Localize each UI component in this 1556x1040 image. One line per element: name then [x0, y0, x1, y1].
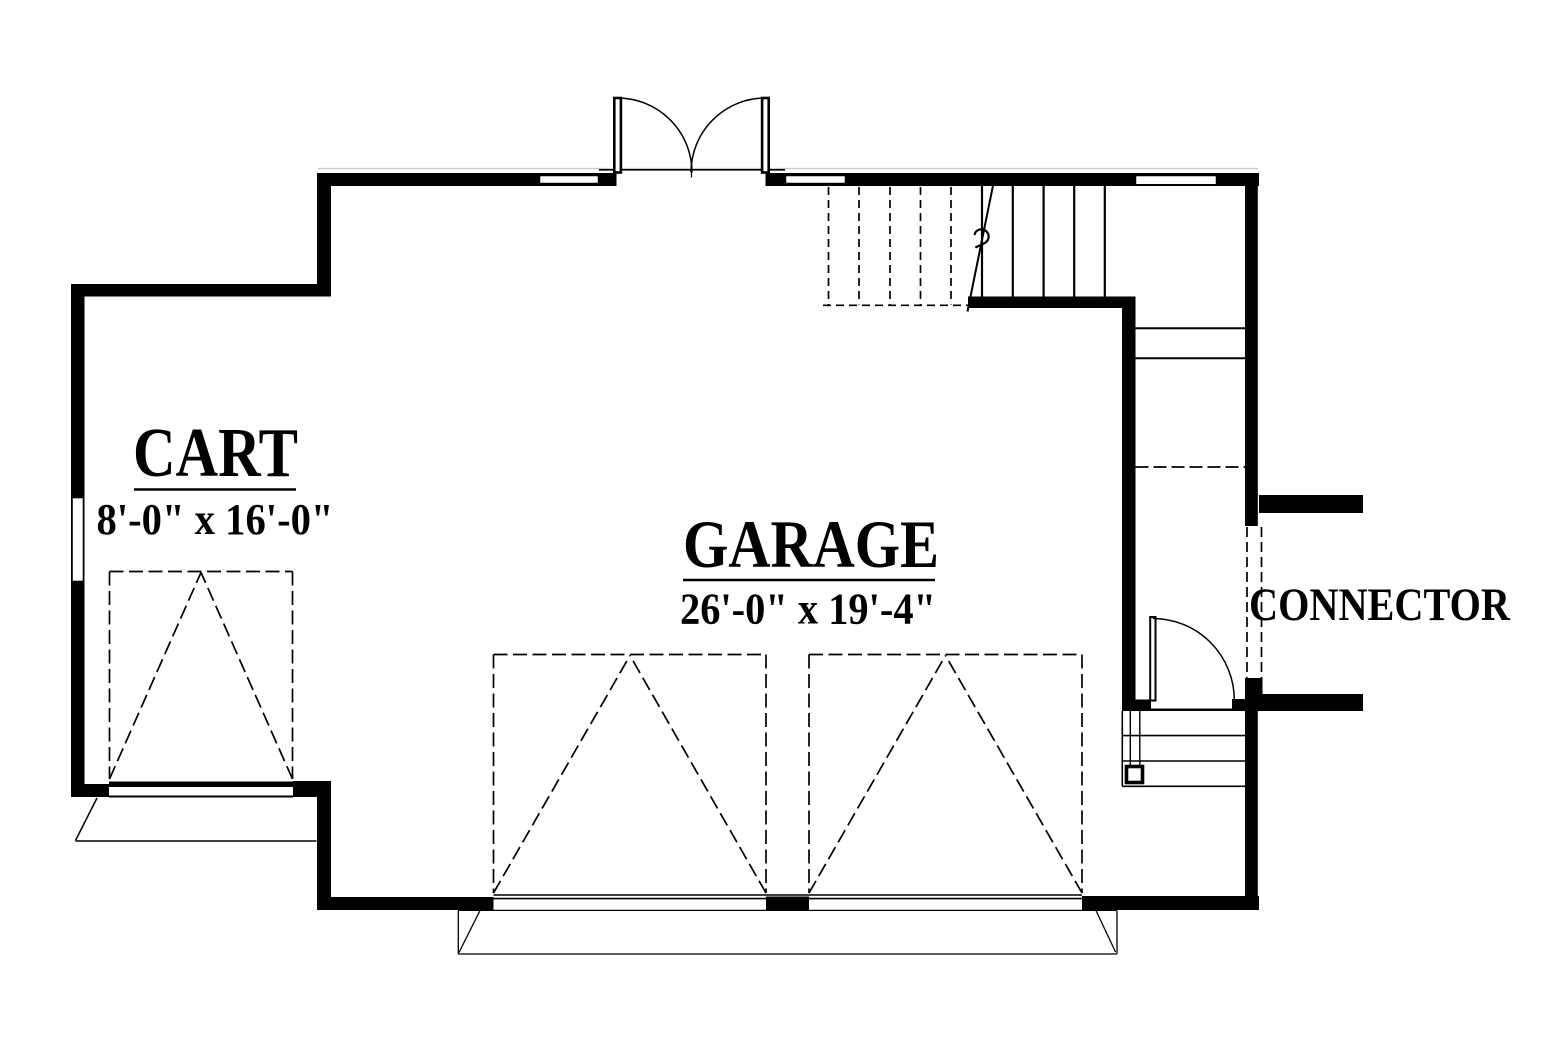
svg-text:CONNECTOR: CONNECTOR: [1249, 579, 1511, 631]
svg-text:CART: CART: [133, 415, 298, 492]
svg-text:GARAGE: GARAGE: [683, 506, 939, 582]
svg-text:26'-0" x 19'-4": 26'-0" x 19'-4": [680, 584, 936, 634]
svg-text:8'-0" x 16'-0": 8'-0" x 16'-0": [97, 494, 334, 544]
